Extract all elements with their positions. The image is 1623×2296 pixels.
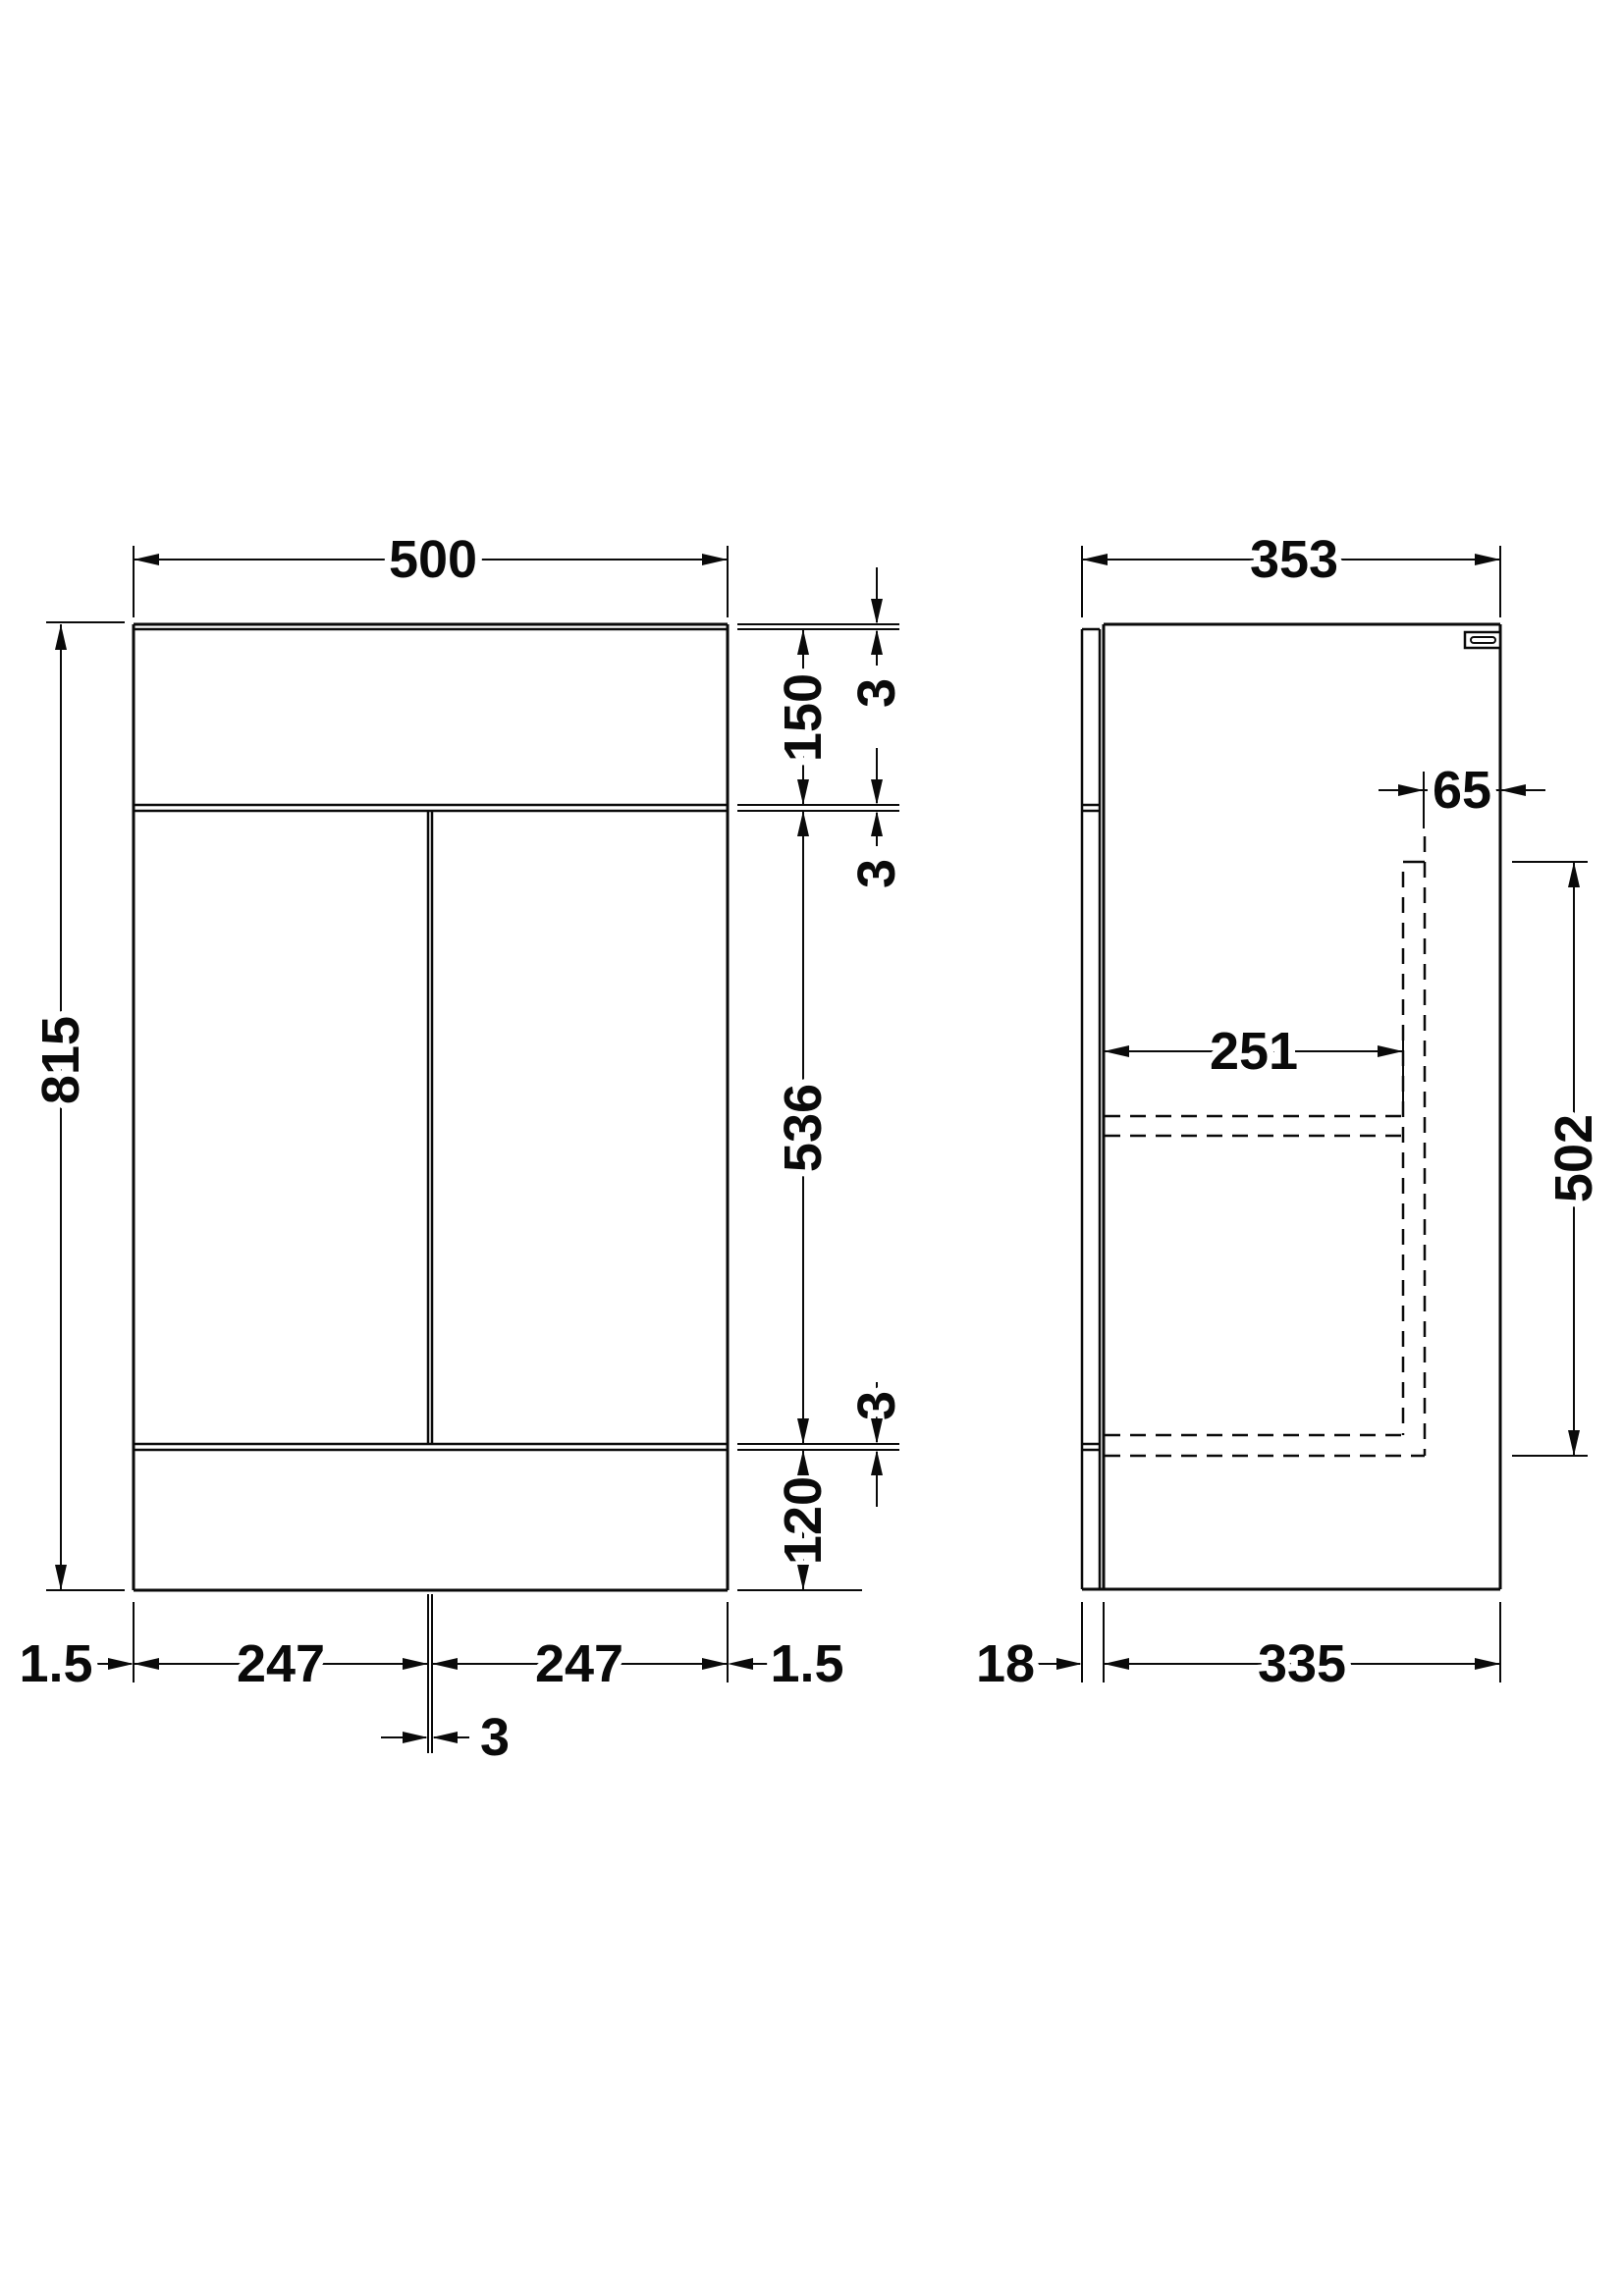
dim-label-815: 815 — [31, 1016, 90, 1104]
dimension-arrowhead — [1500, 784, 1526, 796]
dimension-arrowhead — [702, 1658, 728, 1670]
dim-label-502: 502 — [1544, 1114, 1603, 1202]
dim-label-247: 247 — [237, 1634, 325, 1693]
dimension-arrowhead — [797, 811, 809, 836]
dimension-arrowhead — [728, 1658, 753, 1670]
dimension-arrowhead — [55, 624, 67, 650]
dim-label-1.5: 1.5 — [770, 1634, 843, 1693]
dim-label-3: 3 — [847, 859, 906, 888]
dim-label-3: 3 — [480, 1708, 510, 1767]
dimension-arrowhead — [1568, 862, 1580, 887]
dimension-arrowhead — [1104, 1045, 1129, 1057]
dimension-arrowhead — [108, 1658, 134, 1670]
technical-drawing: 500353815315035363120652515021.52472471.… — [0, 0, 1623, 2296]
dim-label-353: 353 — [1250, 530, 1338, 589]
dim-label-251: 251 — [1210, 1022, 1298, 1081]
dimension-arrowhead — [1398, 784, 1424, 796]
dim-label-335: 335 — [1258, 1634, 1346, 1693]
dimension-arrowhead — [1475, 554, 1500, 565]
dimension-arrowhead — [432, 1732, 458, 1743]
dim-label-1.5: 1.5 — [19, 1634, 92, 1693]
dim-label-120: 120 — [774, 1476, 833, 1565]
dimension-arrowhead — [797, 1565, 809, 1590]
dimension-arrowhead — [871, 779, 883, 805]
dimension-arrowhead — [55, 1565, 67, 1590]
dimension-arrowhead — [1475, 1658, 1500, 1670]
dimension-arrowhead — [797, 779, 809, 805]
dimension-arrowhead — [871, 629, 883, 655]
dim-label-3: 3 — [847, 1391, 906, 1420]
dim-label-500: 500 — [389, 530, 477, 589]
dimension-arrowhead — [1104, 1658, 1129, 1670]
dimension-arrowhead — [403, 1732, 428, 1743]
dimension-arrowhead — [871, 599, 883, 624]
dimension-arrowhead — [871, 1450, 883, 1475]
dimension-arrowhead — [871, 811, 883, 836]
dimension-arrowhead — [797, 1418, 809, 1444]
dimension-arrowhead — [134, 1658, 159, 1670]
drawing-page: 500353815315035363120652515021.52472471.… — [0, 0, 1623, 2296]
dimension-arrowhead — [797, 629, 809, 655]
dimension-arrowhead — [797, 1450, 809, 1475]
dim-label-150: 150 — [774, 673, 833, 762]
dimension-arrowhead — [1378, 1045, 1403, 1057]
dimension-arrowhead — [432, 1658, 458, 1670]
dim-label-536: 536 — [774, 1084, 833, 1172]
dimension-arrowhead — [1082, 554, 1108, 565]
dimension-arrowhead — [134, 554, 159, 565]
dim-label-65: 65 — [1433, 761, 1491, 820]
dimension-arrowhead — [1056, 1658, 1082, 1670]
dimension-arrowhead — [702, 554, 728, 565]
dim-label-18: 18 — [976, 1634, 1035, 1693]
dimension-arrowhead — [1568, 1430, 1580, 1456]
dimension-arrowhead — [403, 1658, 428, 1670]
dim-label-247: 247 — [535, 1634, 623, 1693]
dim-label-3: 3 — [847, 678, 906, 708]
dimension-arrowhead — [871, 1418, 883, 1444]
